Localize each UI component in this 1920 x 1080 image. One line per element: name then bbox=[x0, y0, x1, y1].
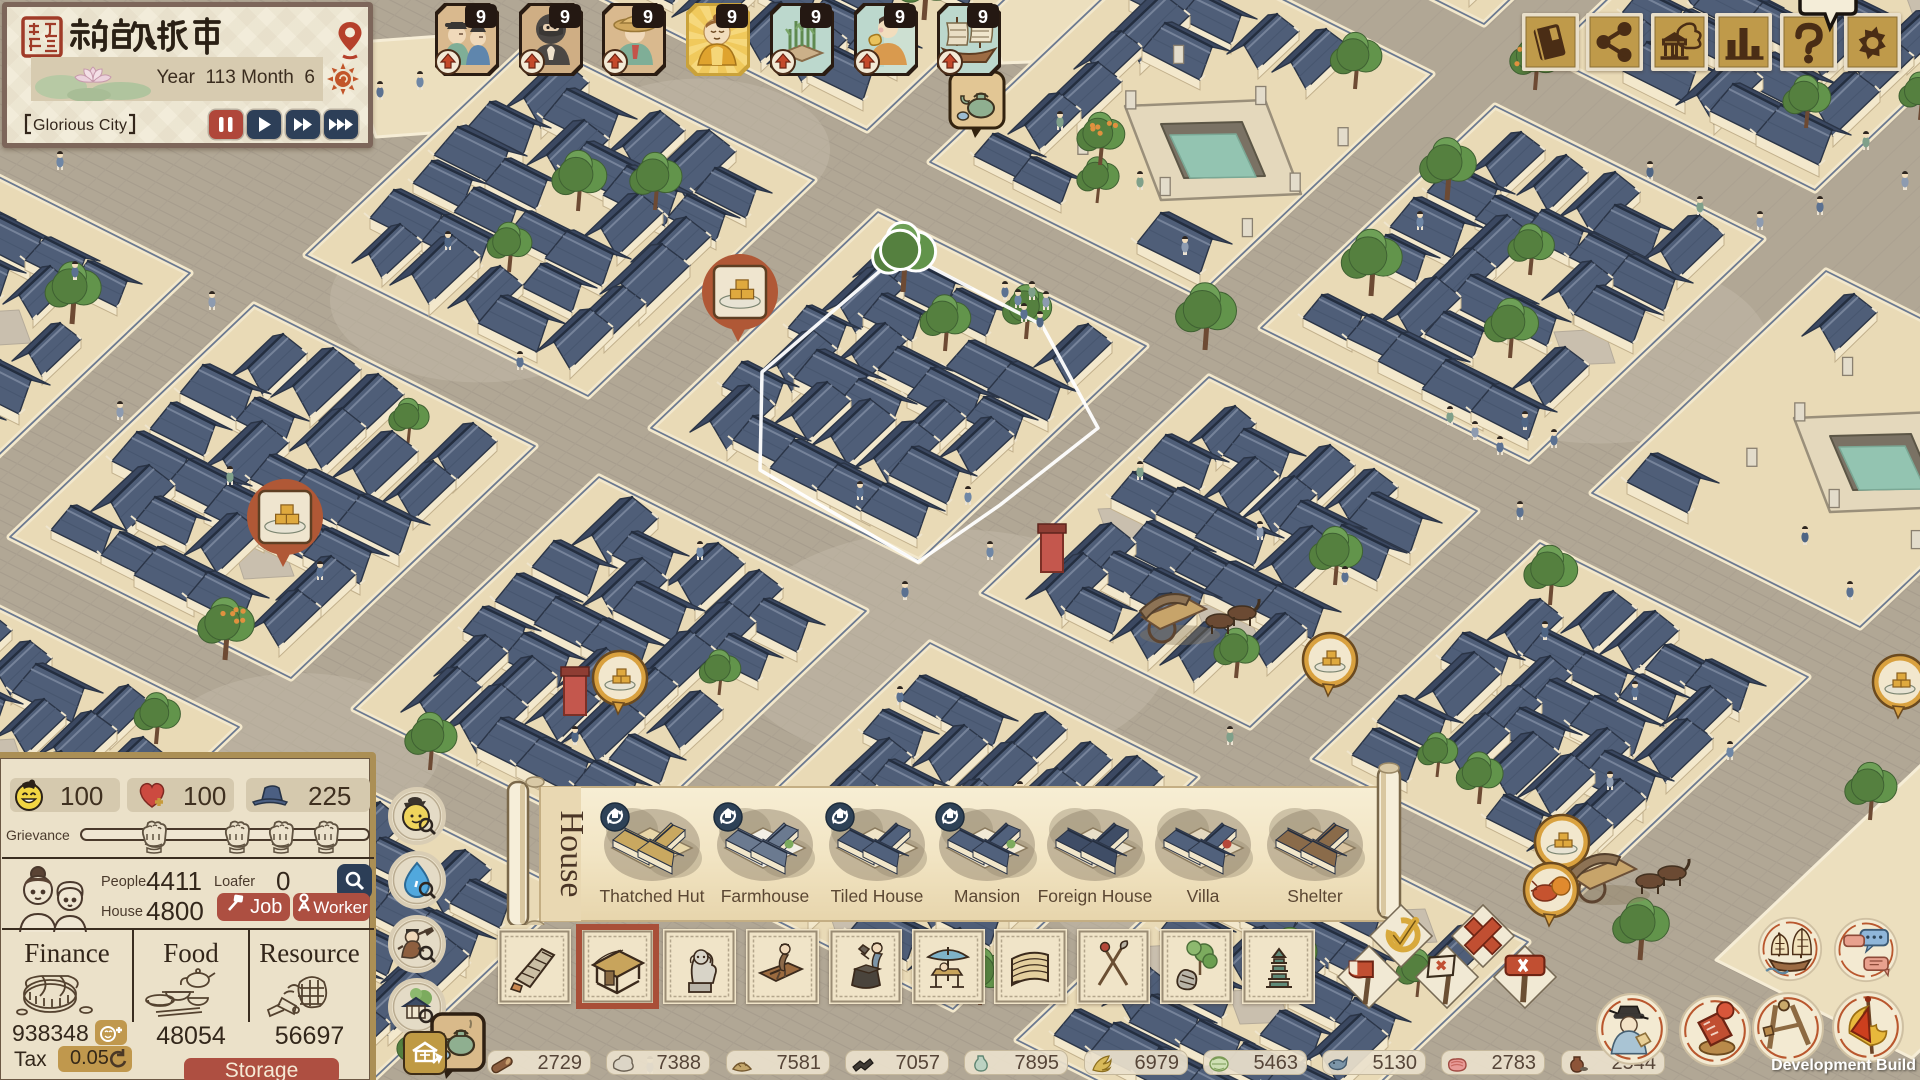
svg-text:Farmhouse: Farmhouse bbox=[721, 886, 810, 906]
svg-text:Foreign House: Foreign House bbox=[1038, 886, 1153, 906]
svg-text:House: House bbox=[553, 811, 590, 898]
svg-text:9: 9 bbox=[643, 7, 653, 27]
svg-text:Mansion: Mansion bbox=[954, 886, 1020, 906]
svg-text:9: 9 bbox=[811, 7, 821, 27]
svg-text:9: 9 bbox=[895, 7, 905, 27]
svg-text:9: 9 bbox=[978, 7, 988, 27]
svg-text:Villa: Villa bbox=[1187, 886, 1220, 906]
svg-text:9: 9 bbox=[560, 7, 570, 27]
svg-text:Tiled House: Tiled House bbox=[831, 886, 924, 906]
svg-text:Thatched Hut: Thatched Hut bbox=[599, 886, 704, 906]
svg-text:9: 9 bbox=[727, 7, 737, 27]
svg-text:Shelter: Shelter bbox=[1287, 886, 1343, 906]
svg-text:9: 9 bbox=[476, 7, 486, 27]
